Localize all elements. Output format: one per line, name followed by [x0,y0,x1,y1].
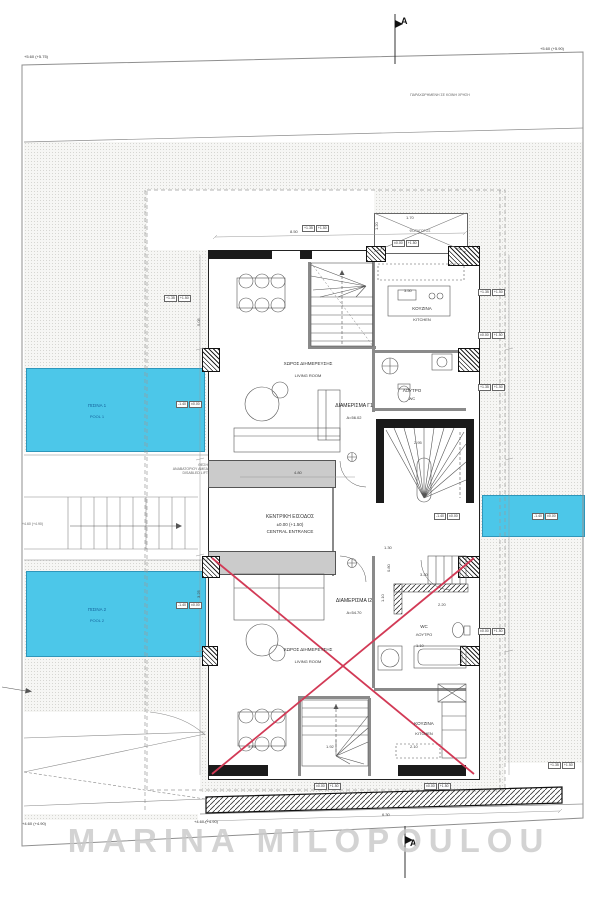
stair-note: +4.60 (+4.90) [22,522,43,526]
dim-stair: 2.95 [414,440,422,445]
g1-kitchen-en: KITCHEN [392,318,452,323]
stair-upper [311,263,373,346]
section-letter-top: A [401,16,408,26]
g1-wc-el: ΛΟΥΤΡΟ [392,388,432,393]
disabled-lift-label: ΘΕΣΗ ΑΝΑΒΑΤΟΡΙΟΥ ΑΜΕΑ DISABLED LIFT [148,463,208,476]
elevation-marker: +1.35+1.50 [478,289,505,296]
elevation-marker: -1.40±0.00 [434,513,460,520]
elevation-marker: +1.35+1.50 [548,762,575,769]
dim-stair-low: 1.92 [326,744,334,749]
elevation-marker: ±0.00+1.50 [392,240,419,247]
site-note: ΠΑΡΑΧΩΡΗΜΕΝΗ ΣΕ ΚΟΙΝΗ ΧΡΗΣΗ [384,93,496,97]
elevation-marker: ±0.00+1.50 [314,783,341,790]
pool1-label-en: POOL 1 [67,415,127,420]
entrance-label: ΚΕΝΤΡΙΚΗ ΕΙΣΟΔΟΣ ±0.00 (+1.50) CENTRAL E… [244,514,336,535]
i2-kitchen-el: ΚΟΥΖΙΝΑ [394,721,454,726]
pool2-label-en: POOL 2 [67,619,127,624]
i2-area: Α=54.70 [322,611,386,616]
g1-area: Α=56.02 [322,416,386,421]
stair-lower [302,700,368,766]
elev-bottom-left: +4.60 (+4.90) [22,822,46,827]
dim-annex-h: 1.20 [374,222,379,230]
i2-kitchen-en: KITCHEN [394,732,454,737]
elevation-marker: +1.35+1.50 [478,384,505,391]
dim-corridor: 4.80 [294,470,302,475]
elev-top-right: +5.60 (+5.90) [540,47,564,52]
i2-living-en: LIVING ROOM [270,660,346,665]
g1-kitchen-el: ΚΟΥΖΙΝΑ [392,306,452,311]
dim-top: 8.50 [290,229,298,234]
dim-left-v2: 3.25 [196,590,201,598]
elevation-marker: +1.35+1.50 [164,295,191,302]
dim-bath-w: 3.20 [420,572,428,577]
g1-wc-en: WC [392,397,432,402]
elevation-marker: ±0.00+1.50 [478,332,505,339]
g1-title: ΔΙΑΜΕΡΙΣΜΑ Γ1 [322,403,386,409]
i2-living-el: ΧΩΡΟΣ ΔΙΗΜΕΡΕΥΣΗΣ [270,647,346,652]
dim-bottom: 6.30 [382,812,390,817]
i2-title: ΔΙΑΜΕΡΙΣΜΑ Ι2 [322,598,386,604]
dim-annex-w: 1.70 [406,215,414,220]
dim-kitchen: 3.50 [404,288,412,293]
red-x-demolition [212,558,474,774]
elevation-marker: ±0.00+1.50 [478,628,505,635]
site-boundary [22,52,583,846]
lightwell-label: ΦΩΤΑΓΩΓΟΣ [382,229,458,233]
stair-central [376,419,474,503]
g1-living-en: LIVING ROOM [270,374,346,379]
elevation-marker: -1.40±0.00 [176,602,202,609]
elevation-marker: -1.40±0.00 [176,401,202,408]
i2-wc-el: ΛΟΥΤΡΟ [404,633,444,638]
elev-top-left: +5.60 (+5.75) [24,55,48,60]
pool2-label: ΠΙΣΙΝΑ 2 [67,607,127,612]
ramp [2,687,205,806]
architect-watermark: MARINA MILOPOULOU [56,822,562,860]
i2-wc-en: WC [404,624,444,629]
pool1-label: ΠΙΣΙΝΑ 1 [67,403,127,408]
dim-kitchen-low: 2.10 [410,744,418,749]
dim-dining-low: 3.25 [248,744,256,749]
plan-linework [0,0,600,900]
dim-closet2: 1.10 [380,594,385,602]
dim-bath-d: 2.20 [438,602,446,607]
g1-living-el: ΧΩΡΟΣ ΔΙΗΜΕΡΕΥΣΗΣ [270,361,346,366]
elevation-marker: +1.35+1.50 [302,225,329,232]
elevation-marker: -1.40±0.00 [532,513,558,520]
floor-plan-canvas: ΠΑΡΑΧΩΡΗΜΕΝΗ ΣΕ ΚΟΙΝΗ ΧΡΗΣΗ +5.60 (+5.75… [0,0,600,900]
dim-wc: 1.10 [416,643,424,648]
dim-closet: 0.80 [386,564,391,572]
dim-left-v: 5.05 [196,318,201,326]
dim-130: 1.30 [384,545,392,550]
elevation-marker: ±0.00+1.50 [424,783,451,790]
